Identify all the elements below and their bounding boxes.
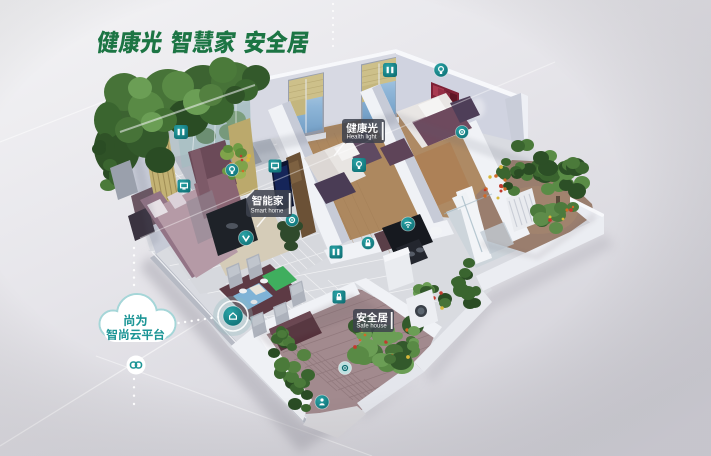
svg-text:Health light: Health light [346,135,376,141]
svg-text:Smart home: Smart home [251,209,284,215]
svg-text:Safe house: Safe house [356,324,387,330]
